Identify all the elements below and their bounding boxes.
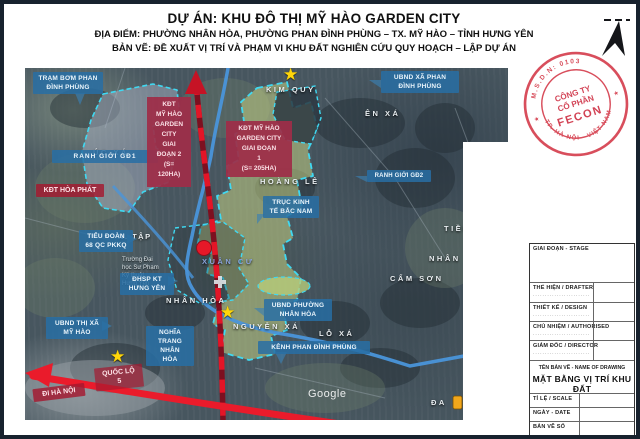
drawing-name: MẶT BẰNG VỊ TRÍ KHU ĐẤT (530, 374, 634, 394)
drafter-signature-line: ........................ (533, 292, 590, 298)
google-watermark: Google (308, 388, 346, 400)
authorised-signature-line: ........................ (533, 331, 590, 337)
label-ranh-gioi-gd1: RANH GIỚI GĐ1 (52, 150, 158, 163)
place-da: ĐA (431, 398, 447, 407)
place-hoang-le: HOÀNG LÊ (260, 177, 320, 186)
drafter-label: THỂ HIỆN / DRAFTER (533, 285, 593, 291)
drawing-title-line: BẢN VẼ: ĐỀ XUẤT VỊ TRÍ VÀ PHẠM VI KHU ĐẤ… (14, 42, 614, 56)
titleblock-date-row: NGÀY - DATE (530, 407, 634, 422)
titleblock-design-row: THIẾT KẾ / DESIGN ......................… (530, 302, 634, 322)
titleblock-name-row: TÊN BẢN VẼ - NAME OF DRAWING MẶT BẰNG VỊ… (530, 360, 634, 394)
cell-divider (579, 408, 580, 422)
design-label: THIẾT KẾ / DESIGN (533, 305, 587, 311)
stage-label: GIAI ĐOẠN - STAGE (533, 246, 589, 252)
label-ubnd-xa-phan-dinh-phung: UBND XÃ PHAN ĐÌNH PHÙNG (381, 71, 459, 93)
place-cam-son: CẨM SƠN (390, 274, 443, 283)
director-signature-line: ........................ (533, 350, 590, 356)
cell-divider (593, 322, 594, 341)
label-tieu-doan-68: TIỂU ĐOÀN 68 QC PKKQ (79, 230, 133, 252)
label-truc-kinh-te-bac-nam: TRỤC KINH TẾ BẮC NAM (263, 196, 319, 218)
titleblock-stage-row: GIAI ĐOẠN - STAGE (530, 244, 634, 282)
label-kenh-phan-dinh-phung: KÊNH PHAN ĐÌNH PHÙNG (258, 341, 370, 354)
map-area: ★ ★ ★ TRẠM BƠM PHAN ĐÌNH PHÙNG RANH GIỚI… (25, 68, 508, 420)
scale-label: TỈ LỆ / SCALE (533, 396, 572, 402)
titleblock-authorised-row: CHỦ NHIỆM / AUTHORISED .................… (530, 321, 634, 341)
label-pointer (254, 308, 264, 316)
zone-box-phase1: KĐT MỸ HÀO GARDEN CITY GIAI ĐOẠN 1 (S= 2… (226, 121, 292, 177)
place-nhan: NHÂN (429, 254, 461, 263)
star-marker-ql5: ★ (110, 348, 125, 365)
title-block: GIAI ĐOẠN - STAGE THỂ HIỆN / DRAFTER ...… (529, 243, 635, 436)
place-kim-quy: KIM QUY (266, 85, 316, 94)
cell-divider (579, 422, 580, 436)
drawing-sheet: DỰ ÁN: KHU ĐÔ THỊ MỸ HÀO GARDEN CITY ĐỊA… (0, 0, 640, 439)
place-lo-xa: LỖ XÁ (319, 329, 354, 338)
place-nhan-hoa: NHÂN HÒA (166, 296, 226, 305)
titleblock-director-row: GIÁM ĐỐC / DIRECTOR ....................… (530, 340, 634, 361)
stamp-star-right-icon: ★ (613, 89, 620, 97)
drawing-name-caption: TÊN BẢN VẼ - NAME OF DRAWING (530, 365, 634, 371)
label-pointer (355, 176, 367, 182)
authorised-label: CHỦ NHIỆM / AUTHORISED (533, 324, 609, 330)
cell-divider (579, 394, 580, 408)
map-cut-region (463, 142, 508, 420)
star-marker-kim-quy: ★ (283, 68, 298, 83)
cell-divider (593, 341, 594, 361)
cell-divider (593, 303, 594, 322)
label-ranh-gioi-gd2: RANH GIỚI GĐ2 (367, 170, 431, 182)
label-ubnd-phuong-nhan-hoa: UBND PHƯỜNG NHÂN HÒA (264, 299, 332, 321)
project-title: DỰ ÁN: KHU ĐÔ THỊ MỸ HÀO GARDEN CITY (14, 10, 614, 28)
place-xuan-cu: XUÂN CƯ (202, 257, 254, 266)
place-nguyen-xa: NGUYỄN XÁ (233, 322, 300, 331)
date-label: NGÀY - DATE (533, 410, 570, 416)
star-marker-nhan-hoa: ★ (220, 304, 235, 321)
sheet-number-label: BẢN VẼ SỐ (533, 424, 565, 430)
titleblock-number-row: BẢN VẼ SỐ (530, 421, 634, 436)
label-tram-bom: TRẠM BƠM PHAN ĐÌNH PHÙNG (33, 72, 103, 94)
label-pointer (75, 93, 85, 105)
sports-field (258, 277, 310, 295)
stamp-star-left-icon: ★ (533, 115, 540, 123)
label-ubnd-thi-xa-my-hao: UBND THỊ XÃ MỸ HÀO (46, 317, 108, 339)
zone-box-phase2: KĐT MỸ HÀO GARDEN CITY GIAI ĐOẠN 2 (S= 1… (147, 97, 191, 187)
sheet-header: DỰ ÁN: KHU ĐÔ THỊ MỸ HÀO GARDEN CITY ĐỊA… (14, 10, 614, 56)
interchange-dot-marker (197, 241, 212, 256)
label-kdt-hoa-phat: KĐT HÒA PHÁT (36, 184, 104, 197)
label-nghia-trang-nhan-hoa: NGHĨA TRANG NHÂN HÒA (146, 326, 194, 366)
label-dhsp-hung-yen: ĐHSP KT HƯNG YÊN (120, 273, 174, 295)
cell-divider (593, 283, 594, 303)
design-signature-line: ........................ (533, 312, 590, 318)
titleblock-drafter-row: THỂ HIỆN / DRAFTER .....................… (530, 282, 634, 303)
label-pointer (369, 80, 381, 88)
director-label: GIÁM ĐỐC / DIRECTOR (533, 343, 598, 349)
location-line: ĐỊA ĐIỂM: PHƯỜNG NHÂN HÒA, PHƯỜNG PHAN Đ… (14, 28, 614, 42)
titleblock-scale-row: TỈ LỆ / SCALE (530, 393, 634, 408)
poi-orange-marker (453, 396, 462, 409)
place-yen-xa: ÊN XÁ (365, 109, 400, 118)
